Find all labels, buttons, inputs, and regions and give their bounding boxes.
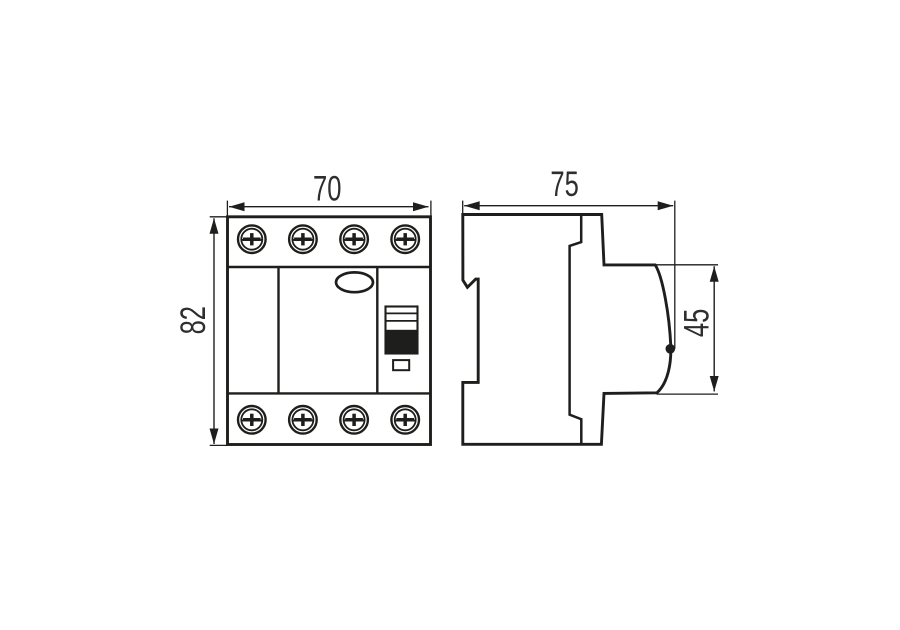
svg-text:45: 45: [676, 309, 716, 337]
svg-text:82: 82: [173, 306, 213, 334]
svg-text:70: 70: [313, 168, 341, 208]
svg-text:75: 75: [550, 164, 578, 204]
